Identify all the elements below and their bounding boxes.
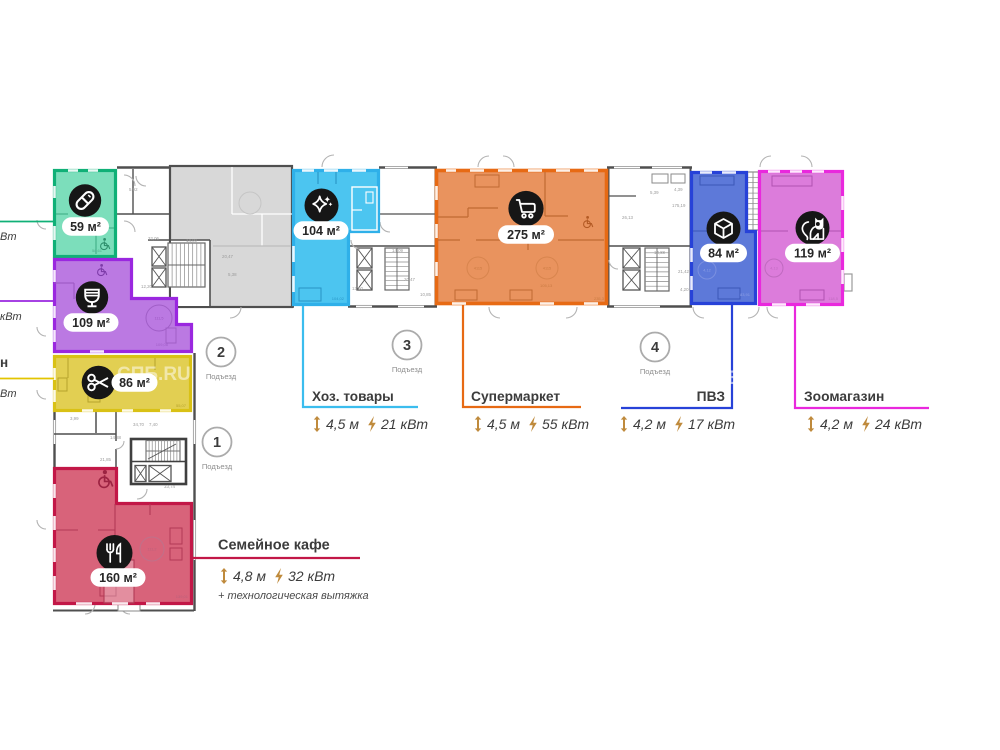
svg-text:Подъезд: Подъезд bbox=[640, 367, 671, 376]
svg-text:20,47: 20,47 bbox=[404, 277, 416, 282]
svg-text:4: 4 bbox=[651, 340, 659, 356]
svg-text:109 м²: 109 м² bbox=[72, 316, 110, 330]
svg-text:33,74: 33,74 bbox=[164, 484, 176, 489]
svg-text:58,61: 58,61 bbox=[92, 248, 103, 253]
svg-text:Хоз. товары: Хоз. товары bbox=[312, 389, 394, 404]
svg-text:1: 1 bbox=[213, 435, 221, 451]
svg-text:Подъезд: Подъезд bbox=[206, 372, 237, 381]
svg-text:21,85: 21,85 bbox=[100, 457, 112, 462]
svg-text:118,5: 118,5 bbox=[828, 296, 838, 301]
svg-text:21 кВт: 21 кВт bbox=[380, 416, 428, 432]
svg-text:3: 3 bbox=[403, 338, 411, 354]
svg-text:32 кВт: 32 кВт bbox=[288, 568, 335, 584]
svg-text:139,01: 139,01 bbox=[176, 594, 189, 599]
svg-text:24 кВт: 24 кВт bbox=[874, 416, 922, 432]
svg-text:7,40: 7,40 bbox=[149, 422, 158, 427]
svg-text:83,91: 83,91 bbox=[740, 292, 751, 297]
svg-text:ПВЗ: ПВЗ bbox=[697, 389, 726, 404]
svg-text:Супермаркет: Супермаркет bbox=[471, 389, 560, 404]
svg-text:4,13: 4,13 bbox=[770, 267, 777, 271]
svg-text:55,07: 55,07 bbox=[176, 403, 187, 408]
svg-text:Зоомагазин: Зоомагазин bbox=[804, 389, 884, 404]
svg-text:104,02: 104,02 bbox=[332, 296, 345, 301]
svg-text:Вт: Вт bbox=[0, 231, 17, 243]
svg-text:175,19: 175,19 bbox=[672, 203, 686, 208]
svg-text:275 м²: 275 м² bbox=[507, 228, 545, 242]
svg-text:111,5: 111,5 bbox=[155, 317, 164, 321]
svg-text:+ технологическая вытяжка: + технологическая вытяжка bbox=[218, 590, 369, 602]
svg-text:3,99: 3,99 bbox=[70, 416, 79, 421]
svg-text:5,92: 5,92 bbox=[129, 187, 138, 192]
svg-text:н: н bbox=[0, 355, 8, 370]
svg-text:14,09: 14,09 bbox=[392, 248, 404, 253]
svg-text:4115: 4115 bbox=[543, 267, 551, 271]
svg-text:4,20: 4,20 bbox=[680, 287, 689, 292]
svg-text:14,09: 14,09 bbox=[186, 238, 198, 243]
svg-text:20,47: 20,47 bbox=[222, 254, 234, 259]
svg-text:12,20: 12,20 bbox=[141, 284, 153, 289]
svg-text:4,5 м: 4,5 м bbox=[326, 416, 359, 432]
svg-text:14,88: 14,88 bbox=[654, 250, 666, 255]
svg-text:5,39: 5,39 bbox=[650, 190, 659, 195]
svg-text:21,42: 21,42 bbox=[678, 269, 690, 274]
svg-text:59 м²: 59 м² bbox=[70, 220, 101, 234]
svg-text:235,3: 235,3 bbox=[594, 296, 605, 301]
svg-text:111,2: 111,2 bbox=[148, 548, 157, 552]
svg-text:26,13: 26,13 bbox=[622, 215, 634, 220]
svg-text:5,38: 5,38 bbox=[228, 272, 237, 277]
svg-text:119 м²: 119 м² bbox=[794, 246, 831, 260]
svg-text:СПБ.RU: СПБ.RU bbox=[700, 368, 774, 389]
svg-text:17 кВт: 17 кВт bbox=[688, 416, 735, 432]
svg-text:86 м²: 86 м² bbox=[119, 376, 150, 390]
svg-text:4,12: 4,12 bbox=[703, 269, 710, 273]
svg-text:Семейное кафе: Семейное кафе bbox=[218, 538, 330, 554]
svg-text:Подъезд: Подъезд bbox=[392, 365, 423, 374]
svg-text:13,60: 13,60 bbox=[352, 286, 364, 291]
svg-text:Вт: Вт bbox=[0, 388, 17, 400]
svg-text:105,13: 105,13 bbox=[540, 283, 553, 288]
svg-text:32,06: 32,06 bbox=[148, 236, 160, 241]
svg-text:84 м²: 84 м² bbox=[708, 246, 739, 260]
svg-text:14,88: 14,88 bbox=[110, 435, 122, 440]
svg-text:4,5 м: 4,5 м bbox=[487, 416, 520, 432]
svg-text:4115: 4115 bbox=[474, 267, 482, 271]
svg-text:4,39: 4,39 bbox=[674, 187, 683, 192]
svg-text:Подъезд: Подъезд bbox=[202, 462, 233, 471]
svg-text:кВт: кВт bbox=[0, 311, 22, 323]
svg-text:4,2 м: 4,2 м bbox=[633, 416, 666, 432]
svg-text:10,85: 10,85 bbox=[420, 292, 432, 297]
svg-text:4,2 м: 4,2 м bbox=[820, 416, 853, 432]
svg-text:2: 2 bbox=[217, 345, 225, 361]
svg-text:104 м²: 104 м² bbox=[302, 224, 340, 238]
svg-text:4,8 м: 4,8 м bbox=[233, 568, 266, 584]
svg-text:55 кВт: 55 кВт bbox=[542, 416, 589, 432]
svg-text:160 м²: 160 м² bbox=[99, 571, 137, 585]
svg-text:34,70: 34,70 bbox=[133, 422, 145, 427]
